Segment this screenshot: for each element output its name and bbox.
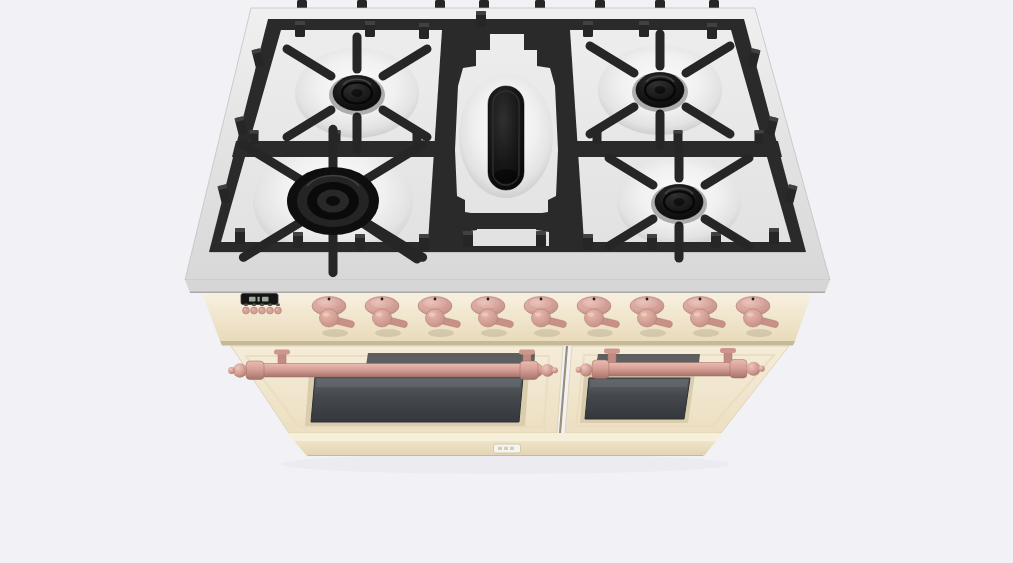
- panel-button-icon: [260, 304, 264, 307]
- grate-frame-tab-top: [235, 228, 245, 232]
- grate-frame-tab-top: [647, 234, 657, 238]
- panel-button-icon: [244, 304, 248, 307]
- handle-bar: [250, 364, 543, 378]
- range-render: [0, 0, 1013, 563]
- grate-frame-tab-top: [419, 234, 429, 238]
- handle-ball-finial: [747, 362, 761, 376]
- grate-frame-tab-top: [639, 21, 649, 25]
- burner-control-knobs: [312, 297, 779, 338]
- right-window-reflection: [590, 380, 688, 387]
- panel-button: [251, 307, 258, 314]
- handle-bar: [596, 363, 748, 377]
- handle-post-cap: [274, 350, 290, 355]
- panel-button-icon: [276, 304, 280, 307]
- grate-divider-stub-top: [755, 130, 764, 134]
- burner-right-rear: [632, 72, 688, 112]
- burner-center-oval: [488, 86, 524, 190]
- handle-post-cap: [604, 349, 620, 354]
- floor-shadow: [280, 454, 730, 474]
- grate-frame-tab-top: [769, 228, 779, 232]
- grate-frame-tab-top: [583, 234, 593, 238]
- panel-button: [259, 307, 266, 314]
- grate-divider-stub-top: [250, 130, 259, 134]
- handle-post-cap: [519, 350, 535, 355]
- render-stage: [0, 0, 1013, 563]
- kick-ledge: [287, 433, 722, 441]
- panel-button-icon: [252, 304, 256, 307]
- kick-panel: [287, 433, 722, 456]
- handle-finial-tip: [552, 367, 558, 373]
- control-panel: [202, 293, 812, 346]
- grate-frame-tab-top: [476, 11, 486, 15]
- panel-button-highlight: [244, 309, 246, 311]
- burner-left-rear: [329, 75, 385, 115]
- panel-button: [267, 307, 274, 314]
- handle-ball-finial: [233, 363, 247, 377]
- oven-doors: [228, 346, 789, 433]
- cooktop: [185, 0, 830, 293]
- panel-button-highlight: [252, 309, 254, 311]
- panel-button-icon: [268, 304, 272, 307]
- handle-post-cap: [720, 348, 736, 353]
- panel-bottom-shadow: [220, 341, 795, 346]
- left-window-reflection: [316, 379, 521, 387]
- handle-finial-tip: [228, 367, 235, 374]
- panel-button-highlight: [260, 309, 262, 311]
- panel-button: [275, 307, 282, 314]
- handle-collar: [730, 360, 747, 379]
- handle-collar: [520, 361, 538, 380]
- center-grate-bar: [450, 213, 563, 229]
- grate-divider-stub-top: [674, 130, 683, 134]
- grate-frame-tab-top: [355, 234, 365, 238]
- panel-button: [243, 307, 250, 314]
- grate-frame-tab-top: [293, 232, 303, 236]
- clock-display-digits: [249, 297, 269, 302]
- grate-frame-tab-top: [295, 21, 305, 25]
- panel-button-highlight: [276, 309, 278, 311]
- grate-frame-tab-top: [463, 231, 473, 235]
- grate-frame-tab-top: [365, 21, 375, 25]
- handle-finial-tip: [758, 365, 764, 371]
- burner-left-front: [287, 167, 379, 235]
- grate-frame-tab-top: [419, 23, 429, 27]
- brand-badge: [494, 444, 521, 453]
- cooktop-rim-front-face: [185, 280, 830, 293]
- handle-collar: [246, 361, 264, 380]
- burner-right-front: [651, 184, 707, 224]
- grate-frame-tab-top: [707, 23, 717, 27]
- handle-collar: [592, 360, 609, 379]
- handle-finial-tip: [576, 367, 582, 373]
- control-panel-face: [202, 293, 812, 341]
- grate-frame-tab-top: [536, 231, 546, 235]
- panel-button-highlight: [268, 309, 270, 311]
- grate-frame-tab-top: [583, 21, 593, 25]
